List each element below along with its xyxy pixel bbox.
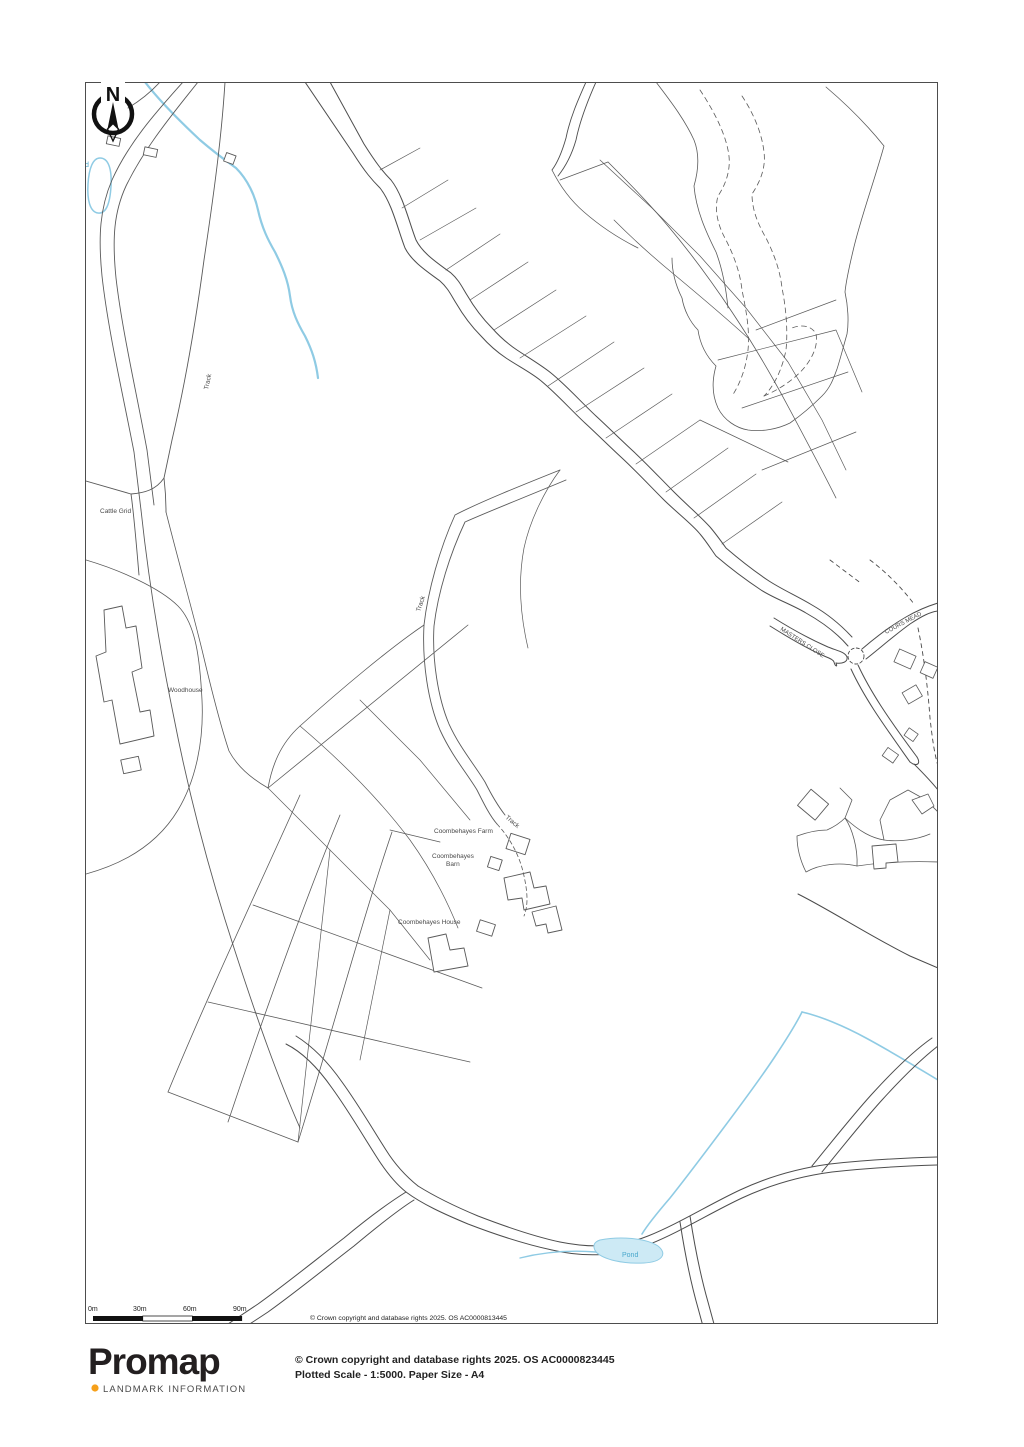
svg-text:Cattle Grid: Cattle Grid <box>100 508 131 515</box>
svg-text:Coombehayes House: Coombehayes House <box>398 919 461 926</box>
svg-text:Pond: Pond <box>622 1252 638 1259</box>
svg-text:Coombehayes: Coombehayes <box>432 853 475 860</box>
svg-text:Plotted Scale - 1:5000. Paper: Plotted Scale - 1:5000. Paper Size - A4 <box>295 1369 484 1381</box>
svg-text:Woodhouse: Woodhouse <box>168 687 203 694</box>
svg-text:Coombehayes Farm: Coombehayes Farm <box>434 828 493 835</box>
svg-text:Barn: Barn <box>446 861 460 868</box>
svg-text:© Crown copyright and database: © Crown copyright and database rights 20… <box>310 1314 507 1322</box>
svg-text:0m: 0m <box>88 1306 98 1313</box>
svg-text:Promap: Promap <box>88 1341 220 1382</box>
svg-text:LANDMARK INFORMATION: LANDMARK INFORMATION <box>103 1384 246 1395</box>
svg-text:30m: 30m <box>133 1306 147 1313</box>
svg-text:© Crown copyright and database: © Crown copyright and database rights 20… <box>295 1354 615 1366</box>
svg-text:60m: 60m <box>183 1306 197 1313</box>
svg-text:90m: 90m <box>233 1306 247 1313</box>
